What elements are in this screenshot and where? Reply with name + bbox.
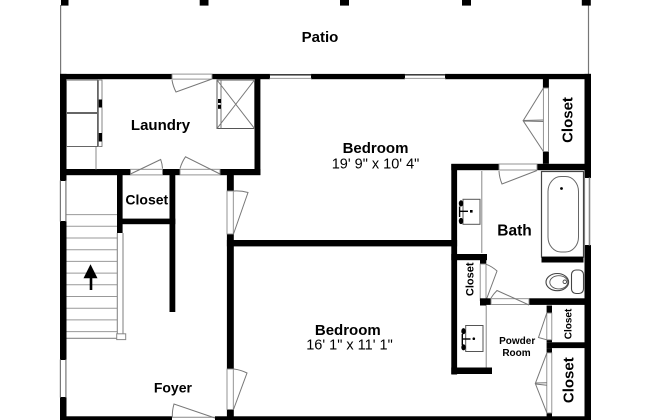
svg-text:Room: Room [502, 348, 530, 359]
svg-text:Closet: Closet [465, 262, 477, 296]
svg-text:19' 9" x 10' 4": 19' 9" x 10' 4" [332, 156, 420, 172]
svg-text:Bedroom: Bedroom [315, 322, 381, 339]
svg-text:16' 1" x 11' 1": 16' 1" x 11' 1" [306, 338, 393, 354]
svg-text:Closet: Closet [561, 357, 578, 403]
svg-text:Laundry: Laundry [131, 117, 191, 134]
svg-text:Patio: Patio [302, 29, 339, 46]
svg-text:Closet: Closet [125, 191, 168, 207]
svg-text:Powder: Powder [499, 336, 535, 347]
svg-text:Closet: Closet [564, 308, 575, 339]
svg-text:Bath: Bath [497, 223, 531, 240]
svg-text:Bedroom: Bedroom [343, 140, 409, 157]
svg-text:Closet: Closet [560, 97, 577, 143]
svg-text:Foyer: Foyer [154, 379, 193, 395]
